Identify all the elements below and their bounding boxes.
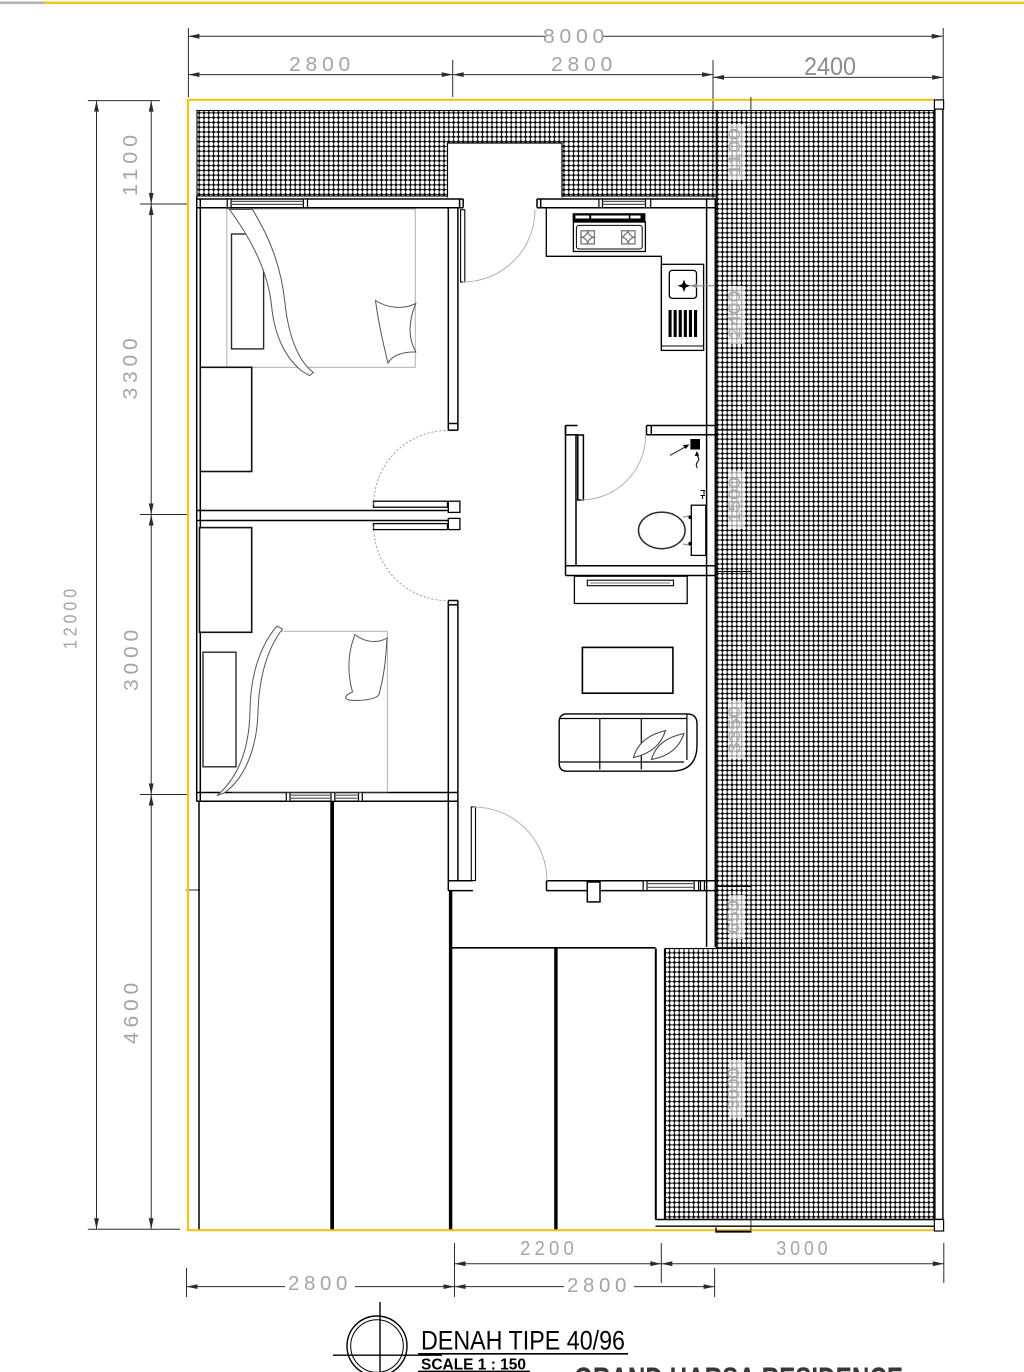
svg-text:GRAND HARSA RESIDENCE: GRAND HARSA RESIDENCE bbox=[574, 1361, 903, 1372]
svg-text:1100: 1100 bbox=[120, 130, 142, 196]
svg-text:3350: 3350 bbox=[725, 706, 744, 754]
svg-text:1500: 1500 bbox=[725, 477, 744, 523]
svg-text:2800: 2800 bbox=[288, 1273, 352, 1295]
svg-text:3300: 3300 bbox=[120, 334, 142, 400]
svg-text:2800: 2800 bbox=[567, 1275, 631, 1297]
svg-text:2400: 2400 bbox=[804, 53, 856, 81]
svg-text:3000: 3000 bbox=[724, 1068, 743, 1110]
svg-text:3000: 3000 bbox=[121, 625, 143, 691]
svg-text:2200: 2200 bbox=[520, 1238, 578, 1260]
svg-text:3000: 3000 bbox=[777, 1238, 832, 1260]
svg-text:SCALE 1 : 150: SCALE 1 : 150 bbox=[421, 1357, 526, 1372]
svg-text:2800: 2800 bbox=[289, 54, 355, 76]
svg-text:DENAH TIPE 40/96: DENAH TIPE 40/96 bbox=[421, 1326, 625, 1356]
svg-text:2800: 2800 bbox=[551, 54, 617, 76]
svg-text:650: 650 bbox=[724, 900, 743, 934]
svg-text:4600: 4600 bbox=[121, 978, 143, 1044]
svg-text:12000: 12000 bbox=[61, 585, 81, 649]
svg-text:8000: 8000 bbox=[543, 26, 609, 48]
svg-text:2400: 2400 bbox=[725, 291, 744, 339]
svg-text:1100: 1100 bbox=[725, 128, 744, 176]
